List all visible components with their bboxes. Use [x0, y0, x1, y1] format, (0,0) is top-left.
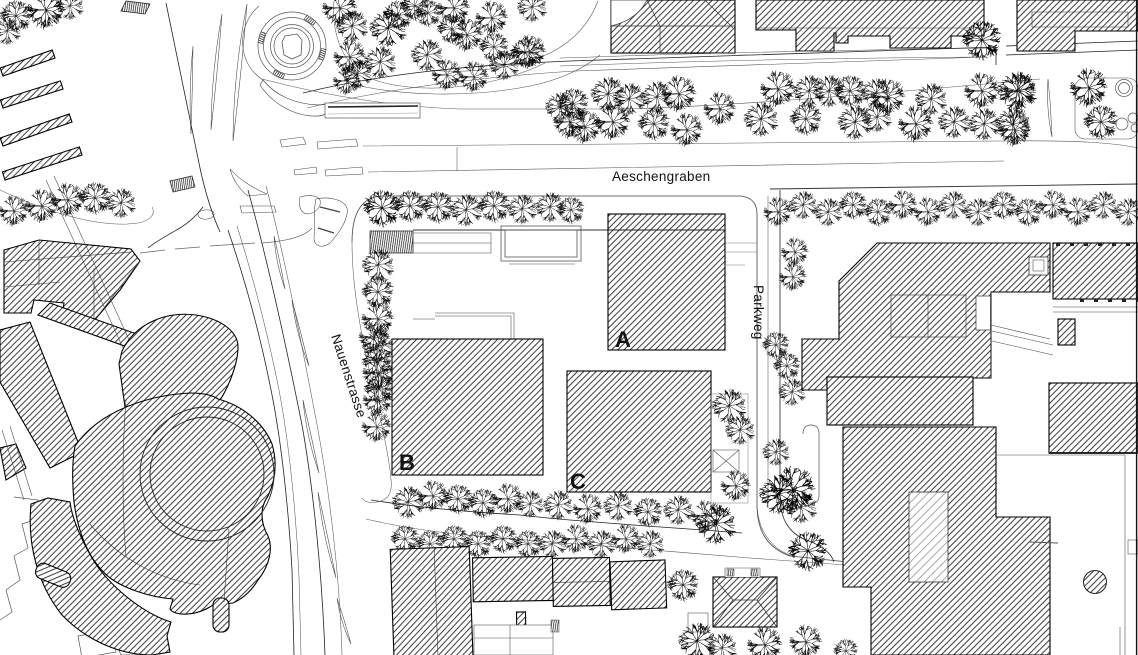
svg-text:C: C: [570, 469, 586, 494]
svg-text:B: B: [399, 450, 415, 475]
svg-text:Parkweg: Parkweg: [751, 285, 766, 340]
svg-text:Aeschengraben: Aeschengraben: [612, 169, 710, 184]
svg-text:A: A: [615, 327, 631, 352]
